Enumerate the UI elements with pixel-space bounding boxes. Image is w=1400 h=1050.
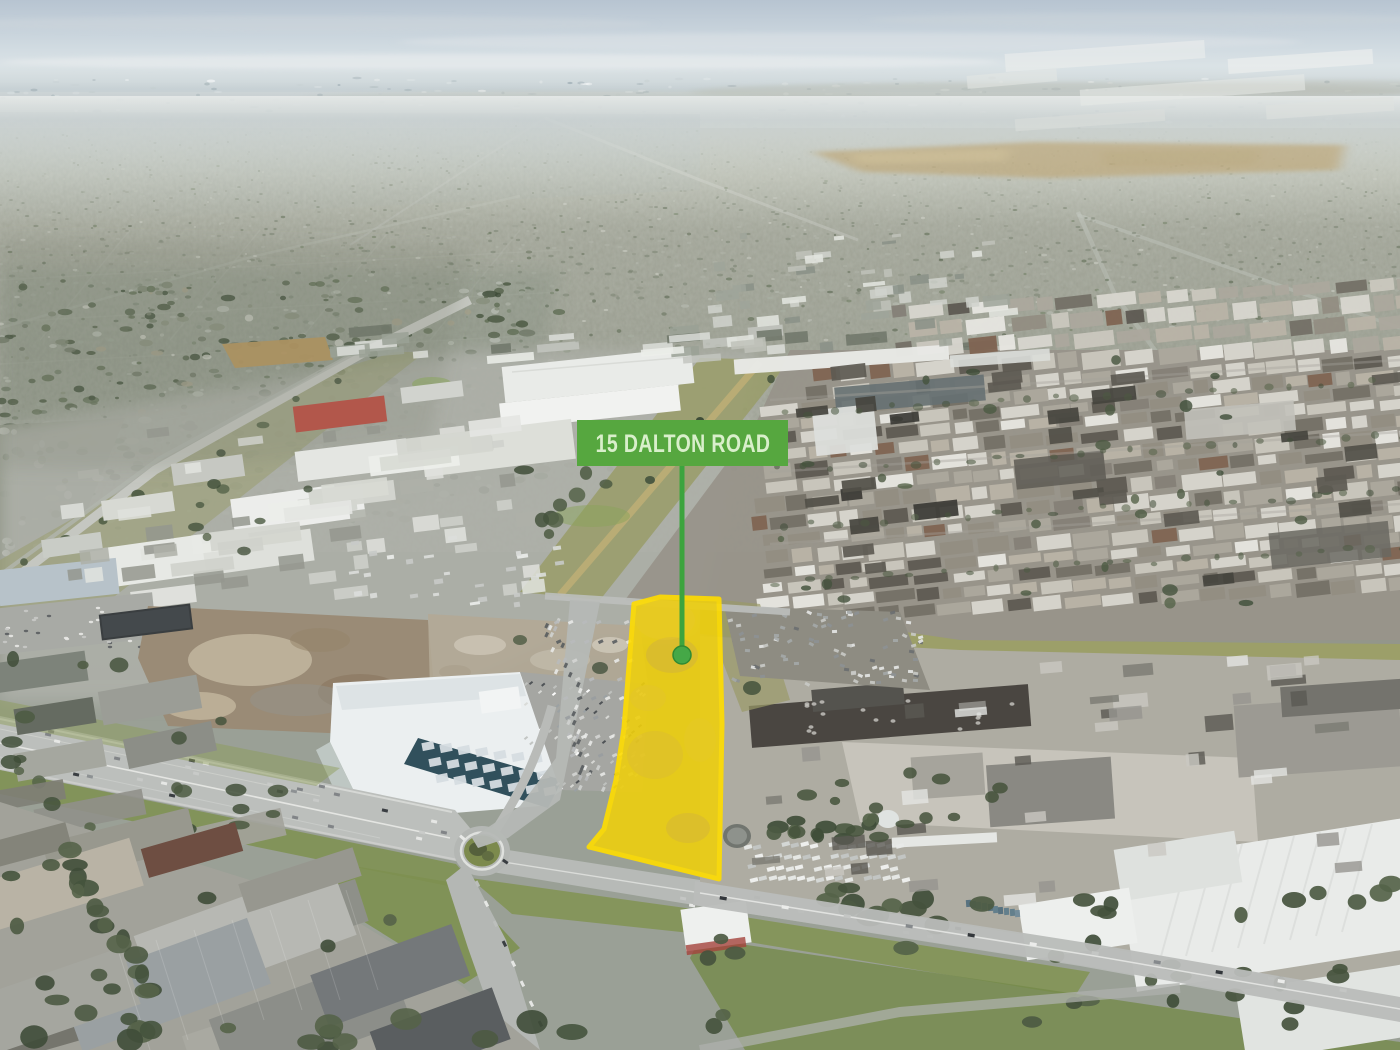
svg-text:15 DALTON ROAD: 15 DALTON ROAD (596, 430, 771, 458)
